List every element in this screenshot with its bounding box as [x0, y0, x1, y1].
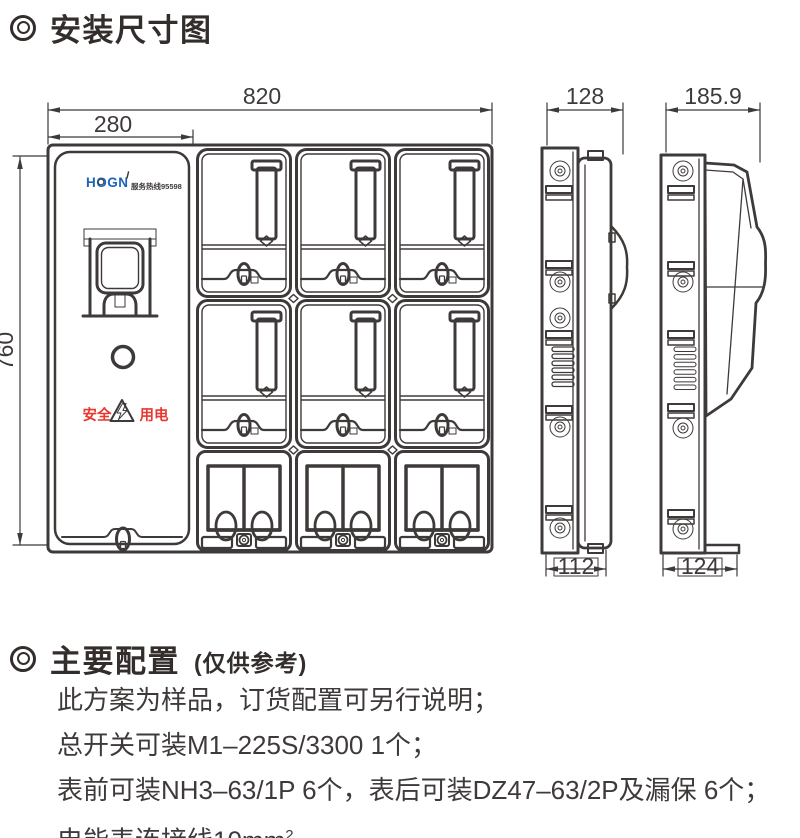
door-seal-lock — [62, 528, 182, 550]
safety-label-left: 安全 — [83, 406, 112, 424]
screw-icon — [550, 308, 570, 328]
meter-bay — [396, 301, 489, 448]
meter-bay — [198, 150, 291, 297]
warning-triangle-icon — [111, 400, 134, 421]
bottom-step — [705, 545, 739, 553]
config-line-text: 电能表连接线10mm — [57, 826, 285, 838]
config-lines: 此方案为样品，订货配置可另行说明； 总开关可装M1–225S/3300 1个； … — [57, 678, 770, 838]
mount-tab — [546, 261, 572, 275]
dim-door-width: 280 — [94, 111, 132, 137]
screw-icon — [550, 161, 570, 181]
config-heading: 主要配置 — [50, 636, 180, 681]
section-bullet-icon — [10, 15, 36, 41]
meter-bay — [297, 301, 390, 448]
side-view-closed — [542, 148, 627, 553]
dim-open-bottom-depth: 124 — [681, 553, 720, 579]
dim-side-bottom-depth: 112 — [558, 553, 595, 579]
breaker-bay — [297, 452, 390, 551]
breaker-bay — [198, 452, 291, 551]
front-view: HOGN 服务热线95598 — [48, 145, 492, 552]
vent-slots — [552, 347, 574, 387]
screw-icon — [673, 519, 693, 539]
section-bullet-icon — [10, 646, 36, 672]
config-line: 总开关可装M1–225S/3300 1个； — [57, 723, 770, 768]
page-title-row: 安装尺寸图 — [10, 5, 213, 50]
brand-logo: HOGN — [86, 175, 129, 190]
dim-side-depth: 128 — [566, 83, 604, 109]
breaker-bay — [396, 452, 489, 551]
safety-label: 安全 用电 — [83, 400, 169, 424]
section-bullet-inner-ring — [17, 21, 30, 34]
service-hotline: 服务热线95598 — [131, 181, 182, 191]
meter-bay — [396, 150, 489, 297]
screw-icon — [673, 418, 693, 438]
mount-tab — [546, 406, 572, 420]
safety-label-right: 用电 — [140, 406, 169, 424]
mount-tab — [546, 331, 572, 345]
vent-slots-filled — [674, 347, 696, 390]
screw-icon — [673, 161, 693, 181]
meter-bay — [297, 150, 390, 297]
door-knob — [113, 347, 134, 368]
mount-tab — [668, 331, 694, 345]
config-line: 电能表连接线10mm2。 — [57, 813, 770, 838]
side-door-profile — [578, 158, 611, 548]
front-door-panel: HOGN 服务热线95598 — [55, 152, 189, 550]
section-bullet-inner-ring — [17, 652, 30, 665]
mount-tab — [668, 262, 694, 276]
page-title: 安装尺寸图 — [50, 5, 213, 50]
mount-tab — [668, 404, 694, 418]
dim-open-depth: 185.9 — [684, 83, 742, 109]
config-line: 此方案为样品，订货配置可另行说明； — [57, 678, 770, 723]
side-view-open — [661, 155, 766, 553]
screw-icon — [550, 518, 570, 538]
dim-front-height: 760 — [0, 332, 18, 370]
hinge-bulge — [611, 226, 627, 309]
page: 安装尺寸图 — [0, 0, 800, 838]
installation-dimension-drawing: HOGN 服务热线95598 — [0, 70, 800, 630]
dim-front-width: 820 — [243, 83, 281, 109]
meter-bay — [198, 301, 291, 448]
config-line: 表前可装NH3–63/1P 6个，表后可装DZ47–63/2P及漏保 6个； — [57, 768, 770, 813]
config-title-row: 主要配置 (仅供参考) — [10, 636, 307, 681]
main-breaker-window — [83, 229, 157, 316]
mount-tab — [668, 186, 694, 200]
screw-icon — [673, 272, 693, 292]
config-line-superscript: 2 — [285, 827, 293, 838]
mount-tab — [546, 186, 572, 200]
config-line-punctuation: 。 — [294, 826, 320, 838]
config-heading-note: (仅供参考) — [194, 639, 307, 678]
